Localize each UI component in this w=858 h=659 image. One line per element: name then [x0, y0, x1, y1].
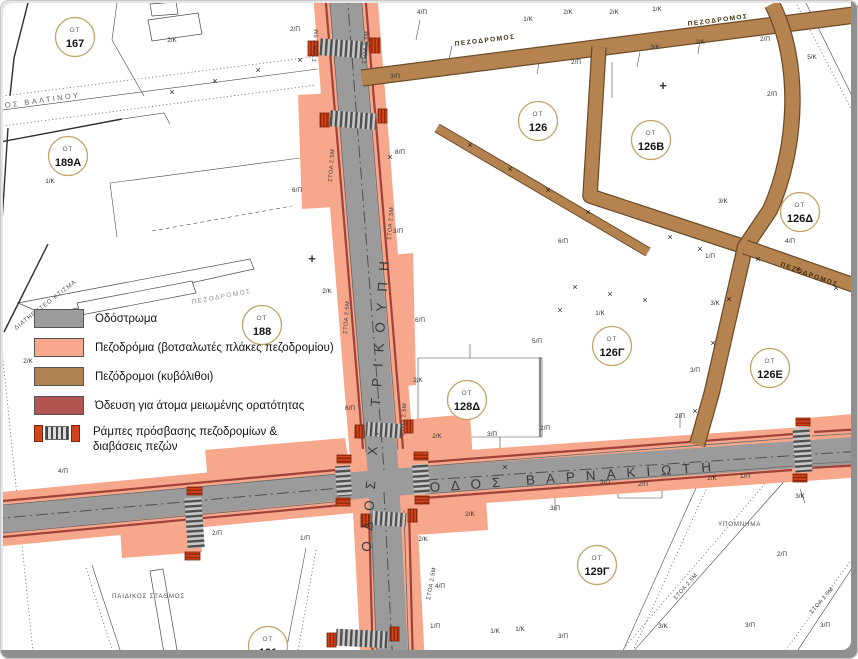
boundary-cross-mark: ×: [255, 65, 260, 75]
ot-prefix: ΟΤ: [69, 27, 80, 34]
ot-prefix: ΟΤ: [262, 636, 273, 643]
crosswalk-stripes-icon: [45, 426, 69, 440]
legend-row-pedestrian-street: Πεζόδρομοι (κυβόλιθοι): [34, 367, 334, 386]
boundary-cross-mark: ×: [755, 254, 760, 264]
legend-row-ramps: Ράμπες πρόσβασης πεζοδρομίων & διαβάσεις…: [34, 425, 334, 455]
ramp-crossing-icon: [34, 425, 82, 441]
ot-number: 126Ε: [757, 369, 783, 381]
parcel-label: 2/Κ: [707, 475, 717, 482]
ot-number: 129Γ: [585, 566, 610, 578]
ot-number: 191: [259, 647, 277, 659]
boundary-cross-mark: ×: [557, 305, 562, 315]
parcel-label: 2/Κ: [23, 358, 33, 365]
parcel-label: 3/Κ: [658, 623, 668, 630]
parcel-label: 3/Κ: [710, 300, 720, 307]
parcel-label: 1/Κ: [652, 6, 662, 13]
sidewalk-swatch: [34, 338, 84, 357]
parcel-label: 3/Π: [558, 633, 568, 640]
parcel-label: 2/Π: [777, 551, 787, 558]
ot-number: 189Α: [55, 157, 81, 169]
parcel-label: 2/Κ: [695, 39, 705, 46]
ot-prefix: ΟΤ: [461, 390, 472, 397]
parcel-label: 1/Π: [430, 623, 440, 630]
ot-block-badge: ΟΤ129Γ: [578, 546, 617, 585]
parcel-label: 2/Κ: [465, 511, 475, 518]
boundary-cross-mark: ×: [507, 164, 512, 174]
stoa-label: ΣΤΟΑ 2.5Μ: [673, 572, 699, 601]
legend-label: Ράμπες πρόσβασης πεζοδρομίων & διαβάσεις…: [93, 425, 277, 455]
boundary-cross-mark: ×: [545, 185, 550, 195]
parcel-label: 3/Π: [820, 622, 830, 629]
ot-block-badge: ΟΤ128Δ: [448, 381, 487, 420]
parcel-label: 2/Κ: [432, 433, 442, 440]
pedestrian-street-swatch: [34, 367, 84, 386]
parcel-label: 1/Π: [705, 253, 715, 260]
ot-prefix: ΟΤ: [532, 111, 543, 118]
boundary-cross-mark: ×: [502, 462, 507, 472]
parcel-label: 2/Π: [767, 91, 777, 98]
parcel-label: 2/Π: [675, 413, 685, 420]
parcel-label: 1/Π: [300, 535, 310, 542]
map-annotation: ΥΠΟΜΝΗΜΑ: [718, 521, 761, 528]
legend-label: Οδόστρωμα: [95, 313, 157, 325]
parcel-label: 2/Κ: [418, 536, 428, 543]
legend-row-tactile-path: Όδευση για άτομα μειωμένης ορατότητας: [34, 396, 334, 415]
ot-number: 126Β: [638, 141, 664, 153]
grid-plus-mark: +: [659, 78, 667, 93]
parcel-label: 6/Π: [345, 405, 355, 412]
parcel-label: 2/Π: [540, 425, 550, 432]
ramp-block-icon: [34, 425, 43, 442]
ot-prefix: ΟΤ: [62, 146, 73, 153]
boundary-cross-mark: ×: [572, 282, 577, 292]
map-annotation: ΠΑΙΔΙΚΟΣ ΣΤΑΘΜΟΣ: [112, 593, 185, 600]
tactile-path-swatch: [34, 396, 84, 415]
parcel-label: 2/Κ: [167, 37, 177, 44]
ot-block-badge: ΟΤ126Β: [632, 121, 671, 160]
parcel-label: 2/Κ: [413, 377, 423, 384]
parcel-label: 3/Π: [393, 228, 403, 235]
parcel-label: 6/Π: [415, 317, 425, 324]
ot-block-badge: ΟΤ191: [249, 627, 288, 659]
legend-label: Πεζοδρόμια (βοτσαλωτές πλάκες πεζοδρομίο…: [95, 342, 334, 354]
ot-prefix: ΟΤ: [764, 358, 775, 365]
map-legend: Οδόστρωμα Πεζοδρόμια (βοτσαλωτές πλάκες …: [34, 309, 334, 465]
parcel-label: 3/Κ: [795, 493, 805, 500]
parcel-label: 3/Π: [600, 479, 610, 486]
parcel-label: 2/Κ: [322, 288, 332, 295]
parcel-label: 1/Κ: [523, 16, 533, 23]
parcel-label: 5/Π: [532, 338, 542, 345]
ot-number: 126Γ: [600, 347, 625, 359]
parcel-label: 1/Κ: [490, 628, 500, 635]
legend-row-sidewalk: Πεζοδρόμια (βοτσαλωτές πλάκες πεζοδρομίο…: [34, 338, 334, 357]
parcel-label: 3/Π: [390, 73, 400, 80]
pezodromos-label: ΠΕΖΟΔΡΟΜΟΣ: [454, 34, 515, 48]
parcel-label: 8/Π: [395, 149, 405, 156]
legend-label: Όδευση για άτομα μειωμένης ορατότητας: [95, 400, 304, 412]
parcel-label: 2/Κ: [609, 9, 619, 16]
ot-number: 126Δ: [787, 213, 813, 225]
boundary-cross-mark: ×: [726, 294, 731, 304]
parcel-label: 1/Κ: [45, 178, 55, 185]
parcel-label: 2/Κ: [563, 9, 573, 16]
parcel-label: 3/Κ: [650, 44, 660, 51]
legend-label: Πεζόδρομοι (κυβόλιθοι): [95, 371, 213, 383]
stoa-label: ΣΤΟΑ 2.5Μ: [809, 586, 835, 615]
ot-block-badge: ΟΤ126Δ: [781, 193, 820, 232]
parcel-label: 3/Π: [690, 367, 700, 374]
roadway-swatch: [34, 309, 84, 328]
ot-block-badge: ΟΤ189Α: [49, 137, 88, 176]
ot-block-badge: ΟΤ126Γ: [593, 327, 632, 366]
ot-block-badge: ΟΤ126Ε: [751, 349, 790, 388]
boundary-cross-mark: ×: [387, 152, 392, 162]
pezodromos-label: ΠΕΖΟΔΡΟΜΟΣ: [191, 288, 252, 306]
parcel-label: 3/Π: [550, 505, 560, 512]
parcel-label: 2/Π: [290, 26, 300, 33]
ramp-block-icon: [71, 425, 80, 442]
ot-block-badge: ΟΤ126: [519, 102, 558, 141]
boundary-cross-mark: ×: [710, 338, 715, 348]
ot-prefix: ΟΤ: [794, 202, 805, 209]
ot-prefix: ΟΤ: [591, 555, 602, 562]
boundary-cross-mark: ×: [212, 76, 217, 86]
boundary-cross-mark: ×: [697, 244, 702, 254]
parcel-label: 1/Π: [740, 473, 750, 480]
parcel-label: 2/Π: [760, 36, 770, 43]
parcel-label: 4/Π: [785, 238, 795, 245]
parcel-label: 1/Κ: [515, 626, 525, 633]
ot-prefix: ΟΤ: [645, 130, 656, 137]
parcel-label: 6/Π: [292, 187, 302, 194]
boundary-cross-mark: ×: [169, 87, 174, 97]
parcel-label: 5/Κ: [807, 54, 817, 61]
map-canvas: ΟΔΟΣ Χ. ΤΡΙΚΟΥΠΗ ΟΔΟΣ ΒΑΡΝΑΚΙΩΤΗ ΟΔΟΣ ΒΑ…: [0, 0, 858, 659]
ot-number: 126: [529, 122, 547, 134]
grid-plus-mark: +: [308, 251, 316, 266]
parcel-label: 6/Π: [558, 238, 568, 245]
parcel-label: 3/Κ: [718, 198, 728, 205]
boundary-cross-mark: ×: [467, 140, 472, 150]
ot-prefix: ΟΤ: [606, 336, 617, 343]
parcel-label: 4/Π: [435, 583, 445, 590]
parcel-label: 3/Π: [487, 431, 497, 438]
boundary-cross-mark: ×: [692, 406, 697, 416]
parcel-label: 2/Π: [638, 481, 648, 488]
boundary-cross-mark: ×: [642, 295, 647, 305]
ot-number: 167: [66, 38, 84, 50]
boundary-cross-mark: ×: [607, 289, 612, 299]
ot-block-badge: ΟΤ167: [56, 18, 95, 57]
parcel-label: 4/Π: [58, 468, 68, 475]
parcel-label: 2/Π: [571, 59, 581, 66]
parcel-label: 3/Π: [745, 622, 755, 629]
ot-number: 128Δ: [454, 401, 480, 413]
boundary-cross-mark: ×: [297, 55, 302, 65]
parcel-label: 2/Π: [212, 530, 222, 537]
boundary-cross-mark: ×: [585, 207, 590, 217]
legend-row-roadway: Οδόστρωμα: [34, 309, 334, 328]
parcel-label: 1/Κ: [595, 310, 605, 317]
parcel-label: 4/Π: [417, 9, 427, 16]
boundary-cross-mark: ×: [667, 232, 672, 242]
